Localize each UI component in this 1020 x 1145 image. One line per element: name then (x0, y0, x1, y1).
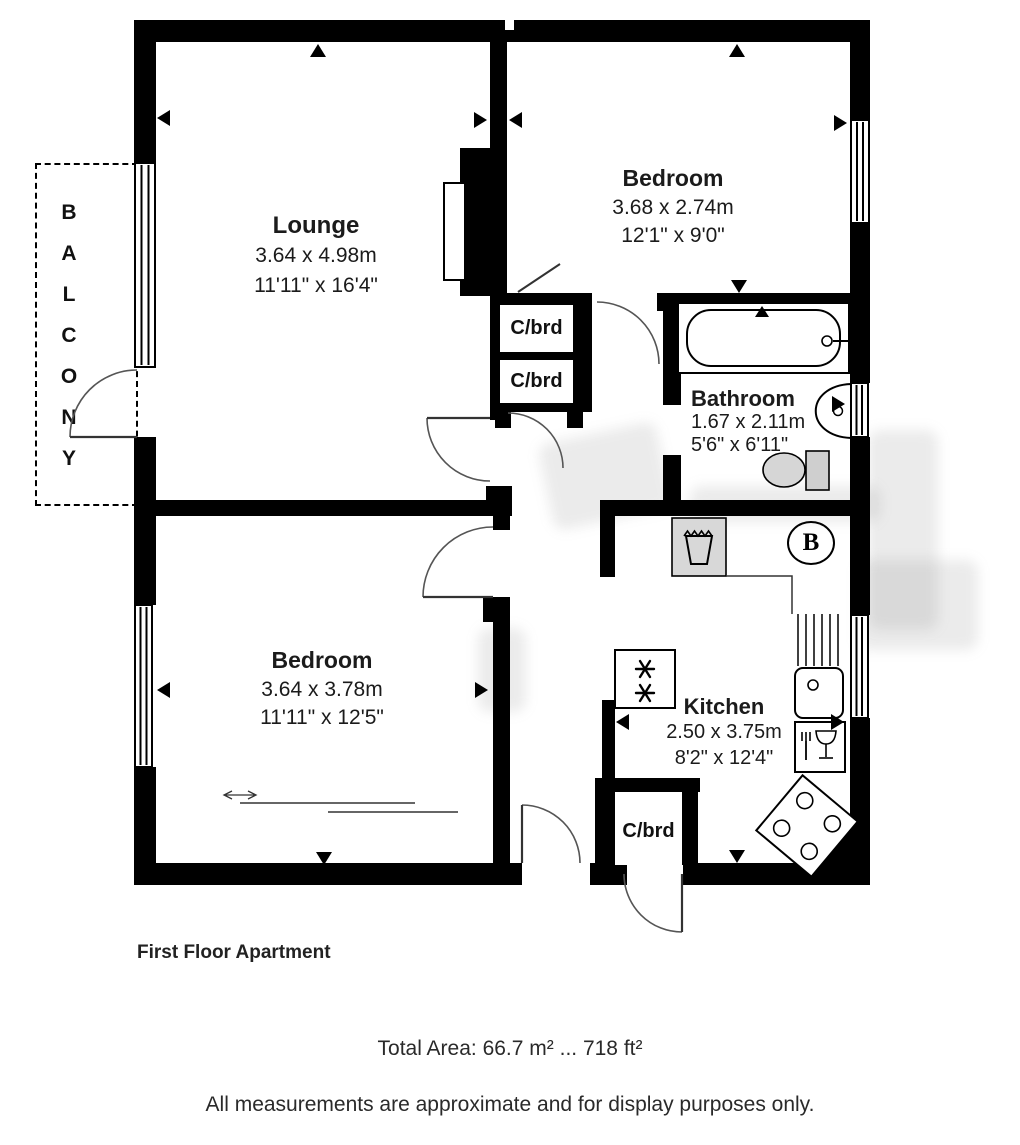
wall-cupboard3-left (595, 792, 615, 865)
measure-arrow-icon (310, 44, 326, 57)
worktop-edge (726, 576, 792, 614)
cupboard-entrance: C/brd (615, 792, 682, 865)
wall-chimney-breast (460, 148, 507, 296)
wall-mid-horizontal (134, 500, 490, 516)
boiler-badge: B (787, 521, 835, 565)
room-name: Kitchen (648, 694, 800, 719)
wall-kitchen-right-upper (850, 516, 870, 615)
room-metric: 3.68 x 2.74m (563, 193, 783, 222)
room-imperial: 5'6" x 6'11" (691, 434, 841, 457)
room-imperial: 8'2" x 12'4" (648, 745, 800, 771)
window-bedroom1-icon (851, 120, 869, 223)
wall-bathroom-bottom (600, 500, 870, 516)
wall-kitchen-right-lower (850, 718, 870, 863)
wall-cupboard3-top (595, 778, 700, 792)
measure-arrow-icon (157, 682, 170, 698)
wall-bathroom-right-lower (850, 437, 870, 516)
wall-joint-notch (505, 20, 514, 30)
wall-bedroom2-right-pier (483, 597, 510, 622)
room-imperial: 11'11" x 16'4" (206, 271, 426, 301)
room-imperial: 11'11" x 12'5" (212, 704, 432, 732)
measure-arrow-icon (316, 852, 332, 865)
measure-arrow-icon (474, 112, 487, 128)
cooker-icon (756, 775, 857, 876)
total-area-text: Total Area: 66.7 m² ... 718 ft² (0, 1037, 1020, 1061)
room-metric: 3.64 x 4.98m (206, 241, 426, 271)
measure-arrow-icon (729, 44, 745, 57)
wall-bottom-left (134, 863, 522, 885)
plan-title: First Floor Apartment (137, 942, 331, 964)
washing-machine-icon (672, 518, 726, 576)
fireplace-icon (443, 182, 466, 281)
measure-arrow-icon (832, 396, 845, 412)
wall-bedroom2-right-lower (493, 622, 510, 863)
measure-arrow-icon (755, 306, 769, 317)
cupboard-hall-lower-label: C/brd (510, 370, 562, 393)
cupboard-hall-lower: C/brd (500, 360, 573, 403)
wall-lounge-left-upper (134, 42, 156, 163)
room-label-bathroom: Bathroom 1.67 x 2.11m 5'6" x 6'11" (691, 386, 841, 457)
wall-bedroom2-left-lower (134, 767, 156, 865)
window-bathroom-icon (851, 383, 868, 437)
room-name: Bathroom (691, 386, 841, 411)
room-label-lounge: Lounge 3.64 x 4.98m 11'11" x 16'4" (206, 210, 426, 301)
room-label-bedroom1: Bedroom 3.68 x 2.74m 12'1" x 9'0" (563, 164, 783, 250)
cupboard-entrance-label: C/brd (622, 820, 674, 843)
wall-bedroom1-right-mid (850, 223, 870, 311)
room-imperial: 12'1" x 9'0" (563, 222, 783, 250)
wall-bottom-stub (590, 863, 627, 885)
wall-cupboard3-right (682, 792, 698, 865)
window-bedroom2-icon (135, 605, 152, 767)
wall-bathroom-left-upper (663, 293, 681, 405)
door-bedroom2 (423, 527, 493, 597)
wall-kitchen-left-mid (602, 700, 615, 780)
wall-cupboard-stub-left (495, 412, 511, 428)
wall-bedroom2-right-upper (493, 516, 510, 530)
cupboard-hall-upper: C/brd (500, 305, 573, 352)
balcony-label: B A L C O N Y (50, 192, 88, 479)
room-metric: 3.64 x 3.78m (212, 675, 432, 704)
wall-cupboard-stub-right (567, 412, 583, 428)
wall-bathroom-right-upper (850, 311, 870, 383)
measure-arrow-icon (729, 850, 745, 863)
cupboard-hall-upper-label: C/brd (510, 317, 562, 340)
room-label-kitchen: Kitchen 2.50 x 3.75m 8'2" x 12'4" (648, 694, 800, 771)
boiler-label: B (803, 529, 820, 557)
wall-mid-notch (486, 486, 512, 516)
measure-arrow-icon (831, 714, 844, 730)
room-metric: 2.50 x 3.75m (648, 719, 800, 745)
measure-arrow-icon (616, 714, 629, 730)
measure-arrow-icon (731, 280, 747, 293)
watermark-smudge (858, 560, 978, 650)
door-entrance (624, 874, 682, 932)
window-lounge-icon (135, 163, 155, 367)
door-corridor (522, 805, 580, 863)
wall-lounge-bedroom-divider (490, 42, 507, 148)
room-name: Bedroom (563, 164, 783, 193)
wall-top (134, 20, 870, 42)
wall-kitchen-bottom (683, 863, 870, 885)
room-name: Lounge (206, 210, 426, 241)
room-metric: 1.67 x 2.11m (691, 411, 841, 434)
measure-arrow-icon (509, 112, 522, 128)
measure-arrow-icon (157, 110, 170, 126)
kitchen-sink-icon (795, 614, 843, 718)
wall-bedroom1-bottom (657, 293, 850, 311)
room-name: Bedroom (212, 646, 432, 675)
wall-kitchen-left-stub (600, 516, 615, 577)
wall-bedroom1-right-upper (850, 42, 870, 120)
wall-bedroom2-left-upper (134, 516, 156, 605)
room-label-bedroom2: Bedroom 3.64 x 3.78m 11'11" x 12'5" (212, 646, 432, 732)
measure-arrow-icon (834, 115, 847, 131)
measure-arrow-icon (475, 682, 488, 698)
floorplan-canvas: C/brd C/brd B A L C O N Y B (0, 0, 1020, 1145)
wardrobe-icon (224, 791, 458, 812)
disclaimer-text: All measurements are approximate and for… (0, 1093, 1020, 1117)
